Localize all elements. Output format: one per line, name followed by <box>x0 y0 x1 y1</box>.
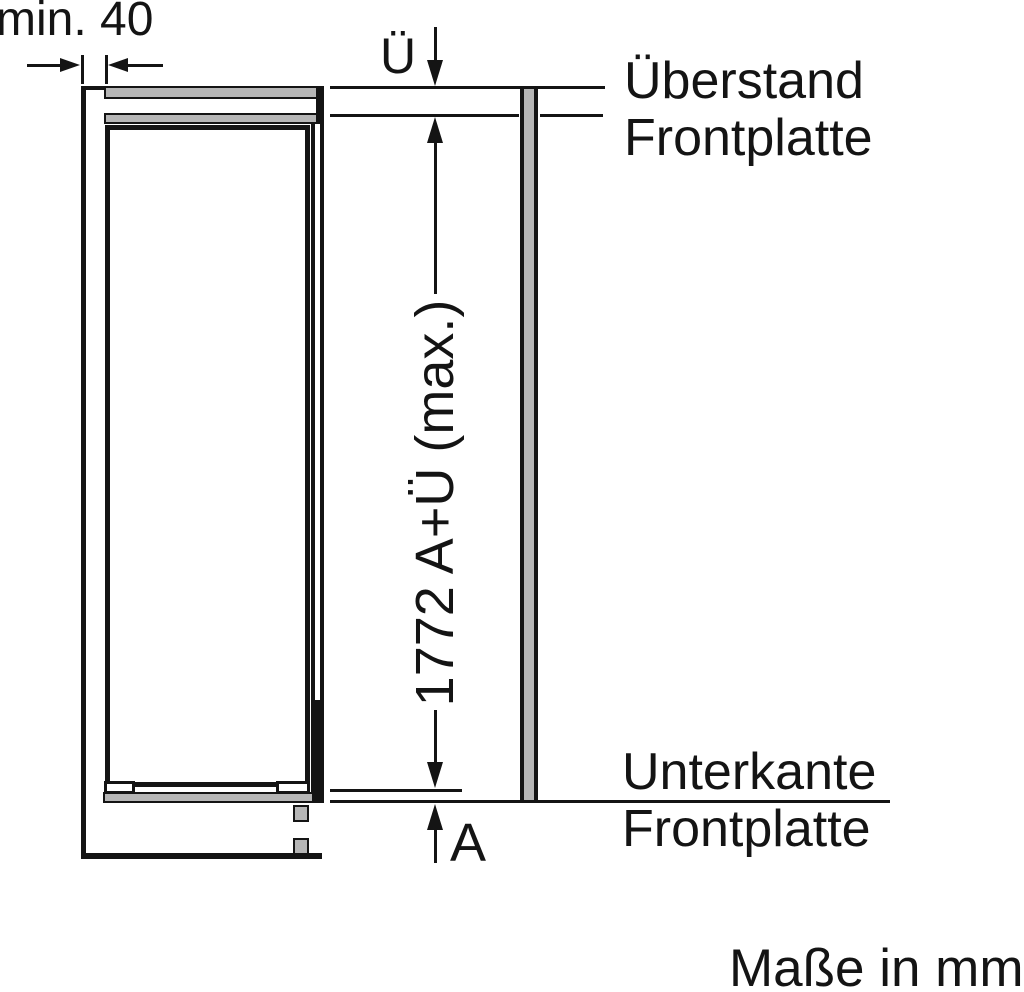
height-dim-top-head <box>427 117 443 143</box>
cabinet-top-edge <box>81 86 106 90</box>
overhang-arrow-head <box>427 60 443 86</box>
min-clearance-label: min. 40 <box>0 0 153 47</box>
units-note: Maße in mm <box>729 938 1023 992</box>
bottom-gap-arrow-head <box>427 804 443 830</box>
callout-overhang-line2: Frontplatte <box>624 110 873 167</box>
bottom-gap-label: A <box>450 812 486 874</box>
adjustable-foot-upper <box>293 805 309 822</box>
min-clearance-tick-left <box>81 55 84 84</box>
ref-line-cabinet-top-right <box>540 114 603 117</box>
callout-bottom-edge-frontpanel: Unterkante Frontplatte <box>622 744 876 858</box>
min-clearance-arrow-left-shaft <box>27 64 61 67</box>
height-dim-label: 1772 A+Ü (max.) <box>406 273 464 733</box>
min-clearance-arrow-right-head <box>108 58 128 72</box>
callout-overhang-frontpanel: Überstand Frontplatte <box>624 53 873 167</box>
adjustable-foot-lower <box>293 838 309 855</box>
height-dim-bottom-head <box>427 762 443 788</box>
front-panel <box>520 87 538 803</box>
rail-end-connector <box>316 86 324 124</box>
min-clearance-arrow-right-shaft <box>128 64 163 67</box>
height-dim-bottom-shaft <box>434 710 437 763</box>
callout-bottom-edge-line2: Frontplatte <box>622 801 876 858</box>
height-dim-top-shaft <box>434 142 437 294</box>
ref-line-panel-top <box>330 86 605 89</box>
min-clearance-arrow-left-head <box>60 58 80 72</box>
door-bottom-section <box>312 700 325 803</box>
overhang-arrow-shaft <box>434 27 437 61</box>
callout-bottom-edge-line1: Unterkante <box>622 744 876 801</box>
ref-line-door-bottom <box>330 789 462 792</box>
cabinet-left-wall <box>81 86 86 859</box>
top-rail-lower <box>104 113 324 124</box>
plinth-panel <box>103 792 318 803</box>
cabinet-bottom-edge <box>81 853 322 859</box>
ref-line-cabinet-top-left <box>330 114 519 117</box>
appliance-body <box>105 125 310 787</box>
overhang-label: Ü <box>380 27 416 85</box>
bottom-gap-arrow-shaft <box>434 829 437 863</box>
installation-diagram: min. 40 Ü 1772 A+Ü (max.) A Überstand Fr… <box>0 0 1024 992</box>
callout-overhang-line1: Überstand <box>624 53 873 110</box>
top-rail-upper <box>104 86 324 99</box>
